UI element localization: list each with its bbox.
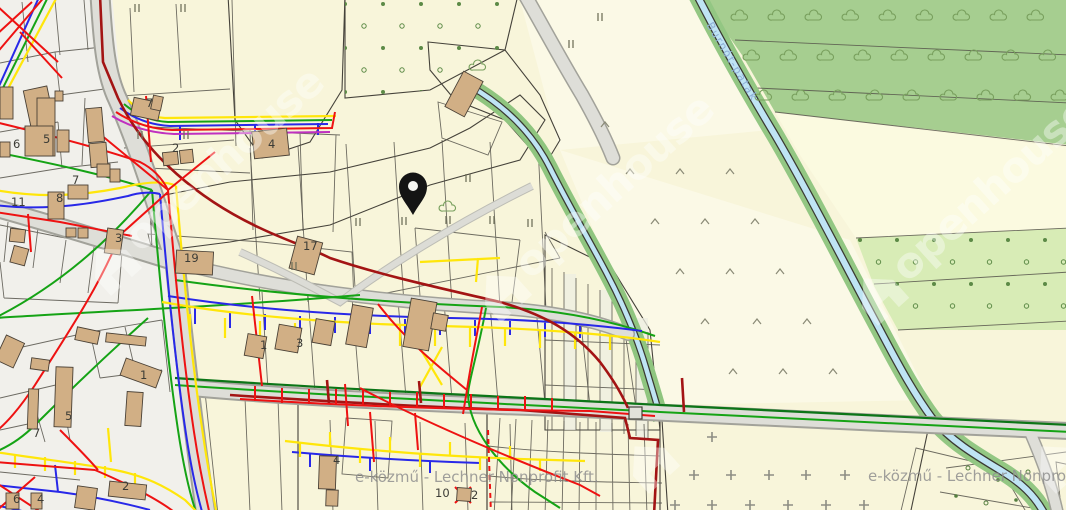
- svg-text:7: 7: [72, 173, 79, 187]
- svg-text:2: 2: [122, 479, 129, 493]
- svg-text:19: 19: [184, 251, 199, 265]
- svg-text:3: 3: [296, 336, 303, 350]
- svg-text:7: 7: [146, 96, 153, 110]
- pin-hole: [408, 181, 418, 191]
- svg-text:7: 7: [33, 426, 40, 440]
- svg-text:11: 11: [11, 195, 26, 209]
- svg-text:2: 2: [172, 141, 179, 155]
- svg-text:8: 8: [56, 191, 63, 205]
- culvert-marker: [629, 407, 642, 419]
- svg-text:6: 6: [13, 492, 20, 506]
- svg-text:17: 17: [303, 239, 318, 253]
- attribution-watermark-right: e-közmű - Lechner Nonprofit Kft.: [868, 467, 1066, 485]
- svg-text:2: 2: [471, 488, 478, 502]
- cadastral-utility-map[interactable]: 57811672419173131572644102 openhouse ope…: [0, 0, 1066, 510]
- svg-text:5: 5: [65, 409, 72, 423]
- map-viewport[interactable]: 57811672419173131572644102 openhouse ope…: [0, 0, 1066, 510]
- svg-text:6: 6: [13, 137, 20, 151]
- attribution-watermark-left: e-közmű - Lechner Nonprofit Kft.: [355, 468, 599, 486]
- svg-text:4: 4: [333, 453, 340, 467]
- svg-text:4: 4: [37, 492, 44, 506]
- svg-text:1: 1: [140, 368, 147, 382]
- svg-text:1: 1: [260, 338, 267, 352]
- svg-text:5: 5: [43, 132, 50, 146]
- svg-text:10: 10: [435, 486, 450, 500]
